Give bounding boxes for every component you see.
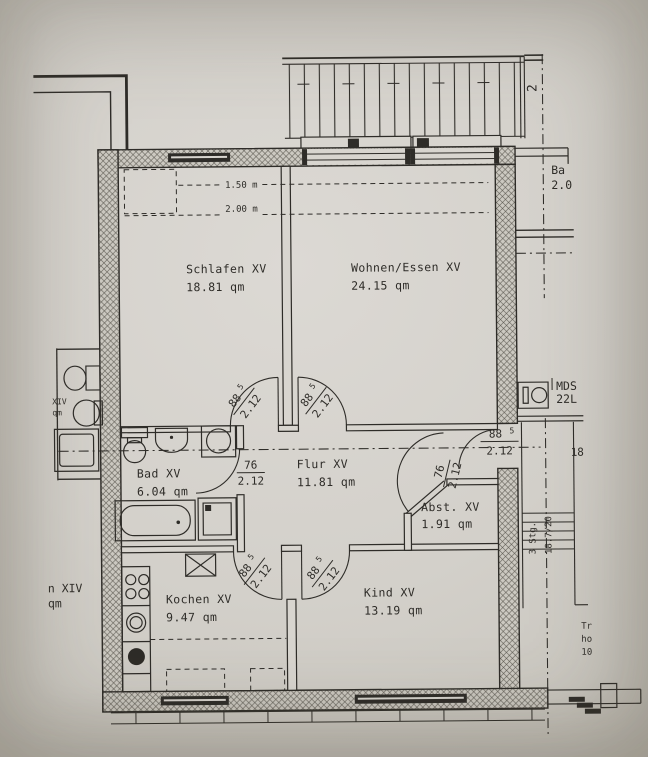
height-line-200: 2.00 m: [225, 205, 258, 215]
windows: [106, 147, 545, 724]
svg-text:76: 76: [244, 459, 257, 472]
closet-dashed: [124, 169, 176, 213]
svg-text:5: 5: [314, 554, 324, 563]
room-name: Schlafen XV: [186, 261, 267, 276]
svg-text:2.12: 2.12: [248, 562, 274, 591]
svg-text:Wohnen/Essen XV: Wohnen/Essen XV: [351, 260, 461, 275]
svg-text:Abst. XV: Abst. XV: [421, 500, 480, 515]
roof-edge-lines: [33, 76, 127, 151]
svg-text:13.19 qm: 13.19 qm: [364, 603, 423, 618]
right-side: MDS 22L 18 3 Stg. 18.7/20: [514, 53, 641, 736]
door-width-sup: 5: [236, 382, 246, 391]
bottom-right-structure: [548, 683, 641, 714]
svg-text:qm: qm: [48, 596, 62, 610]
stair-text-fragment: Tr: [581, 622, 593, 632]
svg-text:24.15 qm: 24.15 qm: [351, 278, 410, 293]
svg-text:Bad XV: Bad XV: [137, 466, 181, 480]
stove-icon: [126, 575, 149, 599]
svg-text:76: 76: [432, 464, 448, 480]
burner-icon: [128, 648, 145, 665]
door-height: 2.12: [238, 392, 264, 421]
bath-fixtures: [114, 426, 236, 541]
axis-label: 2: [525, 84, 540, 92]
room-wohnen-essen: Wohnen/Essen XV 24.15 qm: [351, 260, 461, 293]
svg-text:5: 5: [509, 426, 514, 435]
bathtub-icon: [115, 500, 195, 541]
stairs-symbol: 3 Stg. 18.7/20: [522, 513, 574, 555]
neighbor-toilet-icon: [64, 366, 100, 390]
svg-text:Kochen XV: Kochen XV: [166, 592, 232, 607]
svg-text:2.12: 2.12: [486, 444, 513, 457]
svg-text:Kind XV: Kind XV: [364, 585, 415, 599]
room-abstellraum: Abst. XV 1.91 qm: [421, 500, 480, 532]
neighbor-label-fragment: n XIV: [48, 581, 83, 595]
svg-text:5: 5: [246, 552, 256, 561]
svg-text:Flur XV: Flur XV: [297, 457, 348, 471]
svg-text:qm: qm: [52, 408, 62, 417]
room-schlafen: Schlafen XV 18.81 qm 1.50 m 2.00 m: [124, 167, 489, 295]
wall-dimension: 18: [571, 446, 584, 459]
svg-text:5: 5: [308, 381, 318, 390]
svg-text:2.12: 2.12: [310, 391, 336, 420]
svg-text:22L: 22L: [556, 392, 577, 406]
svg-text:6.04 qm: 6.04 qm: [137, 484, 188, 498]
shower-icon: [198, 498, 236, 540]
svg-text:10: 10: [581, 648, 592, 658]
svg-text:2.12: 2.12: [316, 564, 342, 593]
neighbor-label-fragment: XIV: [52, 397, 67, 406]
door-label-kochen: 88 5 2.12: [231, 548, 276, 594]
neighbor-shower-icon: [54, 429, 98, 471]
neighbor-left: XIV qm n XIV qm: [46, 348, 104, 610]
svg-text:9.47 qm: 9.47 qm: [166, 610, 217, 624]
svg-text:2.0: 2.0: [551, 178, 572, 192]
floor-plan-scan: 88 5 2.12 88 5 2.12 88 5 2.12 88 5 2.12 …: [0, 0, 648, 757]
height-line-150: 1.50 m: [225, 181, 258, 191]
balcony-label-fragment: Ba: [551, 163, 565, 177]
room-area: 18.81 qm: [186, 280, 245, 295]
door-label-schlafen: 88 5 2.12: [221, 378, 266, 424]
stairs-label: 3 Stg.: [528, 522, 538, 555]
neighbor-sink-icon: [73, 400, 102, 426]
room-kochen: Kochen XV 9.47 qm: [166, 592, 232, 625]
dishwasher-icon: [186, 554, 216, 576]
door-label-kind: 88 5 2.12: [299, 550, 344, 596]
door-label-wohnen: 88 5 2.12: [293, 377, 338, 423]
room-flur: Flur XV 11.81 qm: [297, 457, 356, 490]
mds-device: MDS 22L: [518, 378, 577, 409]
svg-text:2.12: 2.12: [238, 475, 265, 488]
svg-text:88: 88: [489, 427, 502, 440]
room-kind: Kind XV 13.19 qm: [364, 585, 423, 618]
door-label-bad: 76 2.12: [237, 459, 265, 488]
room-bad: Bad XV 6.04 qm: [137, 466, 189, 498]
section-line: [59, 447, 541, 451]
svg-text:11.81 qm: 11.81 qm: [297, 475, 356, 490]
kitchen-sink-icon: [127, 613, 146, 632]
svg-text:ho: ho: [581, 635, 592, 645]
svg-text:1.91 qm: 1.91 qm: [421, 517, 472, 531]
